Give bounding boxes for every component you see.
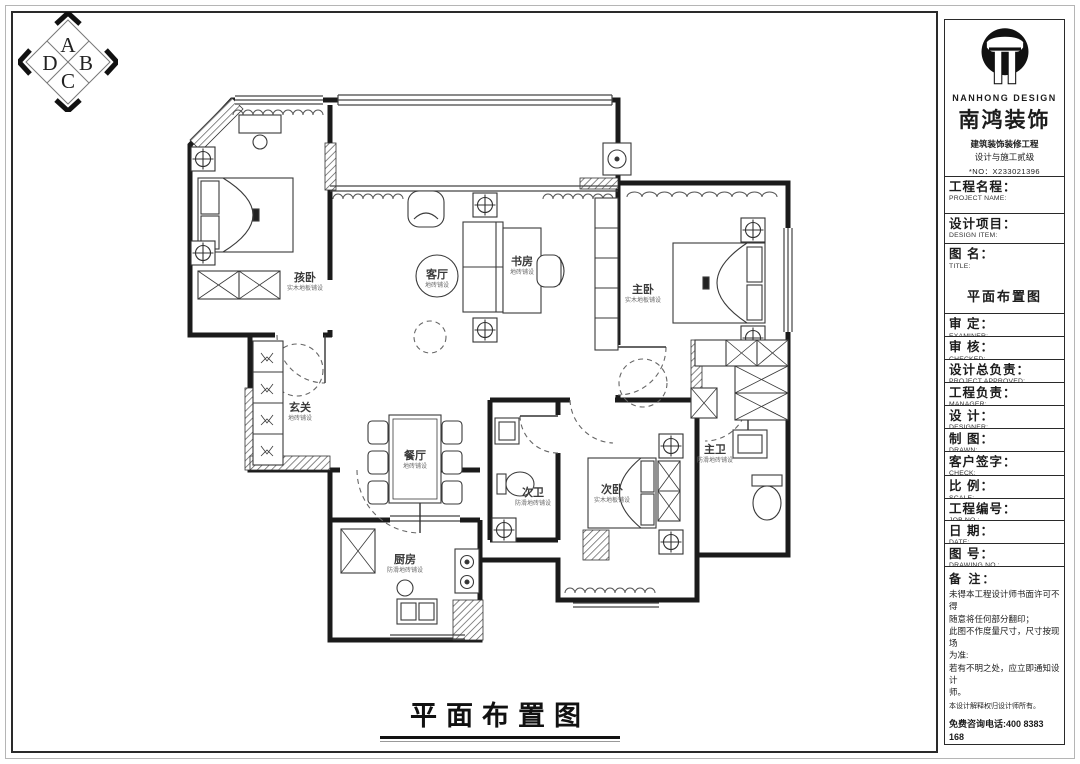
fridge [341,529,375,573]
field-label-cn: 审 核： [949,340,1060,354]
room-label-living: 客厅 [425,267,448,281]
room-label-bed2: 次卧 [601,482,623,496]
room-label-dining: 餐厅 [403,448,426,462]
field-label-cn: 客户签字： [949,455,1060,469]
side-table-icon [473,193,497,217]
field-drawing-no: 图 号： DRAWING NO.: [945,544,1064,567]
washer-icon [492,518,516,542]
room-finish-kitchen: 防滑地砖铺设 [387,566,423,574]
room-label-study: 书房 [511,254,533,268]
register-icon [191,147,215,171]
register-icon [191,241,215,265]
field-label-cn: 设计项目： [949,217,1060,231]
room-label-kids: 孩卧 [294,270,316,284]
kids-wardrobe [198,271,280,299]
side-table-icon [473,318,497,342]
field-designer: 设 计： DESIGNER: [945,406,1064,429]
compass-letter-d: D [42,51,57,75]
stove [455,549,479,593]
note-small: 本设计解释权归设计师所有。 [949,702,1060,712]
floor-plan: 孩卧 实木地板铺设 客厅 地砖铺设 书房 地砖铺设 主卧 实木地板铺设 玄关 地… [175,85,795,660]
field-project-approved: 设计总负责： PROJECT APPROVED: [945,360,1064,383]
room-finish-dining: 地砖铺设 [403,462,427,470]
field-drawn: 制 图： DRAWN: [945,429,1064,452]
bookshelf [595,198,618,350]
title-block: NANHONG DESIGN 南鸿装饰 建筑装饰装修工程 设计与施工贰级 *NO… [936,11,1071,753]
shoe-cabinet [253,341,283,465]
room-finish-study: 地砖铺设 [510,268,534,276]
note-line: 此图不作度量尺寸，尺寸按现场 [949,625,1060,650]
room-label-bath2: 次卫 [522,485,544,499]
sofa [463,222,503,312]
room-label-entry: 玄关 [289,400,311,414]
compass-letter-c: C [61,69,75,93]
brand-license-no: *NO：X233021396 [945,166,1064,177]
field-examiner: 审 定： EXAMINER: [945,314,1064,337]
note-line: 随意将任何部分翻印； [949,613,1060,625]
brand-line2: 设计与施工贰级 [945,151,1064,163]
room-finish-mbath: 防滑地砖铺设 [697,456,733,464]
second-bath-sink [495,418,519,444]
room-label-kitchen: 厨房 [394,552,416,566]
room-finish-bath2: 防滑地砖铺设 [515,499,551,507]
nightstand-icon [659,530,683,554]
field-design-item: 设计项目： DESIGN ITEM: [945,214,1064,244]
second-wardrobe [658,461,680,521]
field-label-cn: 图 名： [949,247,1060,261]
master-bath-sink [733,430,767,458]
notes-label: 备 注： [949,571,1060,588]
field-job-no: 工程编号： JOB NO.: [945,499,1064,521]
room-label-mbath: 主卫 [704,442,726,456]
compass-icon: A B C D [18,12,118,112]
title-underline-thin [380,741,620,742]
field-label-cn: 日 期： [949,524,1060,538]
nightstand-icon [741,218,765,242]
washing-machine [603,143,631,175]
drawing-title-text: 平面布置图 [380,694,620,733]
field-label-cn: 审 定： [949,317,1060,331]
room-finish-master: 实木地板铺设 [625,296,661,304]
field-project-name: 工程名程： PROJECT NAME: [945,177,1064,214]
note-line: 未得本工程设计师书面许可不得 [949,588,1060,613]
room-finish-living: 地砖铺设 [425,281,449,289]
field-label-cn: 设 计： [949,409,1060,423]
drawing-sheet: A B C D [0,0,1080,764]
field-label-cn: 比 例： [949,479,1060,493]
field-label-en: PROJECT NAME: [949,195,1060,202]
note-line: 若有不明之处，应立即通知设计 [949,662,1060,687]
field-client-signature: 客户签字： CHECK: [945,452,1064,477]
field-title-value: 平面布置图 [949,286,1060,305]
field-label-cn: 工程负责： [949,386,1060,400]
title-underline-thick [380,736,620,739]
room-finish-bed2: 实木地板铺设 [594,496,630,504]
brand-name-cn: 南鸿装饰 [945,104,1064,134]
field-date: 日 期： DATE: [945,521,1064,544]
field-label-cn: 图 号： [949,547,1060,561]
field-checked: 审 核： CHECKED: [945,337,1064,360]
brand-name-en: NANHONG DESIGN [945,93,1064,103]
armchair [408,191,444,227]
field-label-en: TITLE: [949,263,1060,270]
field-label-cn: 工程编号： [949,502,1060,516]
master-bath-toilet [752,475,782,520]
master-bed [673,243,765,323]
note-line: 师。 [949,686,1060,698]
notes-section: 备 注： 未得本工程设计师书面许可不得 随意将任何部分翻印； 此图不作度量尺寸，… [945,567,1064,744]
note-line: 为准: [949,649,1060,661]
title-block-inner: NANHONG DESIGN 南鸿装饰 建筑装饰装修工程 设计与施工贰级 *NO… [944,19,1065,745]
field-manager: 工程负责： MANAGER: [945,383,1064,406]
field-title: 图 名： TITLE: 平面布置图 [945,244,1064,314]
room-label-master: 主卧 [632,282,654,296]
nanhong-logo-icon [973,26,1037,86]
compass-letter-b: B [79,51,93,75]
field-label-en: DESIGN ITEM: [949,232,1060,239]
phone-number: 免费咨询电话:400 8383 168 [949,718,1060,744]
room-finish-kids: 实木地板铺设 [287,284,323,292]
nightstand-icon [659,434,683,458]
field-label-cn: 制 图： [949,432,1060,446]
field-scale: 比 例： SCALE: [945,476,1064,498]
room-finish-entry: 地砖铺设 [288,414,312,422]
brand-line1: 建筑装饰装修工程 [945,138,1064,150]
field-label-cn: 工程名程： [949,180,1060,194]
brand-area: NANHONG DESIGN 南鸿装饰 建筑装饰装修工程 设计与施工贰级 *NO… [945,20,1064,177]
field-label-cn: 设计总负责： [949,363,1060,377]
drawing-title: 平面布置图 [380,694,620,742]
compass-letter-a: A [60,33,76,57]
